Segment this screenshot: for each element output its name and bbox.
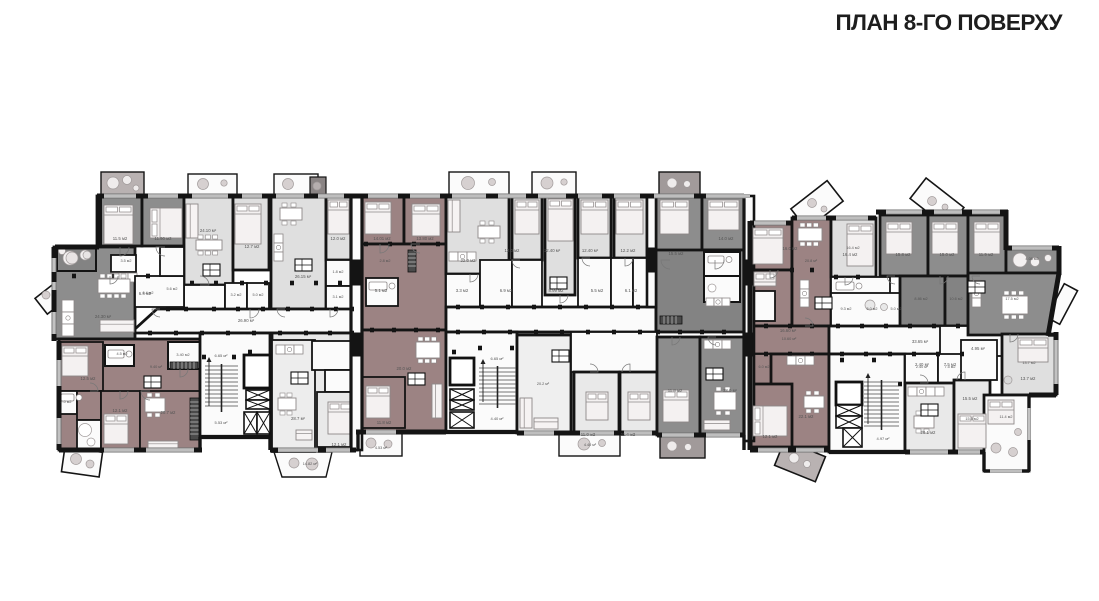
svg-text:5.6 м2: 5.6 м2 [166, 287, 177, 291]
svg-text:1.8 м2: 1.8 м2 [332, 270, 343, 274]
svg-text:4.40 м²: 4.40 м² [584, 443, 597, 447]
svg-text:15.5 м2: 15.5 м2 [965, 417, 978, 421]
svg-text:8.99 м2: 8.99 м2 [549, 288, 565, 293]
svg-text:3.2 м2: 3.2 м2 [230, 293, 241, 297]
svg-text:13.7 м2: 13.7 м2 [1021, 376, 1037, 381]
svg-text:12.5 м2: 12.5 м2 [81, 376, 97, 381]
svg-text:26.15 м²: 26.15 м² [295, 274, 312, 279]
svg-text:33.65 м²: 33.65 м² [912, 339, 929, 344]
svg-text:3.5 м2: 3.5 м2 [120, 259, 131, 263]
svg-text:12.1 м2: 12.1 м2 [332, 442, 348, 447]
svg-text:12.40 м²: 12.40 м² [544, 248, 561, 253]
svg-text:16.0 м2: 16.0 м2 [783, 246, 799, 251]
svg-text:12.40 м²: 12.40 м² [582, 248, 599, 253]
svg-text:13.7 м2: 13.7 м2 [1022, 361, 1035, 365]
svg-text:5.53 м²: 5.53 м² [215, 420, 229, 425]
svg-text:15.0 м2: 15.0 м2 [940, 252, 956, 257]
svg-text:4.5 м2: 4.5 м2 [116, 352, 127, 356]
svg-text:3.40 м2: 3.40 м2 [176, 353, 189, 357]
svg-text:20.2 м²: 20.2 м² [537, 382, 550, 386]
svg-text:6.65 м²: 6.65 м² [215, 353, 229, 358]
svg-text:12.1 м2: 12.1 м2 [763, 434, 779, 439]
svg-text:5.0 м2: 5.0 м2 [890, 307, 901, 311]
svg-text:12.2 м2: 12.2 м2 [621, 248, 637, 253]
svg-text:11.4 м2: 11.4 м2 [621, 432, 636, 437]
svg-text:20.1 м2: 20.1 м2 [921, 430, 937, 435]
svg-text:12.0 м2: 12.0 м2 [505, 248, 521, 253]
svg-text:11.5 м2: 11.5 м2 [113, 236, 128, 241]
svg-text:5.0 м2: 5.0 м2 [252, 293, 263, 297]
svg-text:6.9 м2: 6.9 м2 [500, 288, 513, 293]
svg-text:22.0 м2: 22.0 м2 [461, 258, 477, 263]
svg-text:9.40 м²: 9.40 м² [150, 365, 163, 369]
svg-text:14.82 м²: 14.82 м² [303, 462, 318, 466]
svg-text:12.0 м2: 12.0 м2 [331, 236, 347, 241]
svg-text:5.5 м2: 5.5 м2 [591, 288, 604, 293]
svg-text:10.60 м²: 10.60 м² [782, 337, 797, 341]
svg-text:2.40 м²: 2.40 м² [916, 365, 929, 369]
svg-text:20.0 м2: 20.0 м2 [397, 366, 413, 371]
svg-text:14.0 м2: 14.0 м2 [719, 236, 735, 241]
svg-text:15.5 м2: 15.5 м2 [669, 251, 685, 256]
svg-text:7.5 м2: 7.5 м2 [944, 365, 955, 369]
svg-text:13.80 м2: 13.80 м2 [416, 236, 434, 241]
svg-text:4.53 м²: 4.53 м² [375, 446, 388, 450]
svg-text:11.8 м2: 11.8 м2 [668, 388, 683, 393]
svg-text:12.7 м2: 12.7 м2 [245, 244, 261, 249]
svg-text:17.5 м2: 17.5 м2 [1005, 297, 1018, 301]
svg-text:4.40 м²: 4.40 м² [491, 416, 505, 421]
svg-text:11.9 м2: 11.9 м2 [979, 252, 994, 257]
svg-text:24.30 м²: 24.30 м² [95, 314, 112, 319]
svg-text:2.0 м2: 2.0 м2 [60, 400, 71, 404]
svg-text:6.1 м2: 6.1 м2 [625, 288, 638, 293]
svg-text:8.86 м2: 8.86 м2 [914, 297, 927, 301]
svg-text:ПЛАН 8-ГО ПОВЕРХУ: ПЛАН 8-ГО ПОВЕРХУ [835, 10, 1063, 35]
svg-text:14.01 м2: 14.01 м2 [373, 236, 391, 241]
svg-text:11.90 м2: 11.90 м2 [155, 236, 173, 241]
svg-text:28.7 м²: 28.7 м² [291, 416, 306, 421]
svg-text:11.4 м2: 11.4 м2 [1000, 415, 1013, 419]
svg-text:20.7 м2: 20.7 м2 [161, 410, 177, 415]
svg-text:5.1 м2: 5.1 м2 [375, 288, 388, 293]
svg-text:9.3 м2: 9.3 м2 [840, 307, 851, 311]
svg-text:16.60 м²: 16.60 м² [780, 328, 797, 333]
svg-text:15.8 м2: 15.8 м2 [896, 252, 912, 257]
svg-text:6.0 м2: 6.0 м2 [758, 365, 769, 369]
svg-text:16.4 м2: 16.4 м2 [843, 252, 859, 257]
svg-text:6.65 м²: 6.65 м² [491, 356, 505, 361]
svg-text:4.08 м2: 4.08 м2 [1025, 257, 1038, 261]
svg-text:16.4 м2: 16.4 м2 [846, 246, 859, 250]
svg-text:11.8 м2: 11.8 м2 [581, 432, 596, 437]
svg-text:4.95 м²: 4.95 м² [971, 346, 986, 351]
svg-text:24.10 м²: 24.10 м² [200, 228, 217, 233]
svg-text:2.8 м2: 2.8 м2 [379, 259, 390, 263]
svg-text:4.97 м²: 4.97 м² [877, 436, 891, 441]
svg-text:15.5 м2: 15.5 м2 [963, 396, 979, 401]
svg-text:11.8 м2: 11.8 м2 [377, 420, 392, 425]
svg-text:3.3 м2: 3.3 м2 [456, 288, 469, 293]
svg-text:22.1 м2: 22.1 м2 [799, 414, 815, 419]
svg-text:20.8 м²: 20.8 м² [805, 259, 818, 263]
svg-text:38.0 м²: 38.0 м² [723, 388, 738, 393]
svg-text:3.1 м2: 3.1 м2 [332, 295, 343, 299]
svg-text:6.4 м2: 6.4 м2 [142, 291, 153, 295]
svg-text:5.0 м2: 5.0 м2 [866, 307, 877, 311]
svg-text:26.90 м²: 26.90 м² [238, 318, 255, 323]
svg-text:12.1 м2: 12.1 м2 [113, 408, 129, 413]
svg-text:10.6 м2: 10.6 м2 [949, 297, 962, 301]
